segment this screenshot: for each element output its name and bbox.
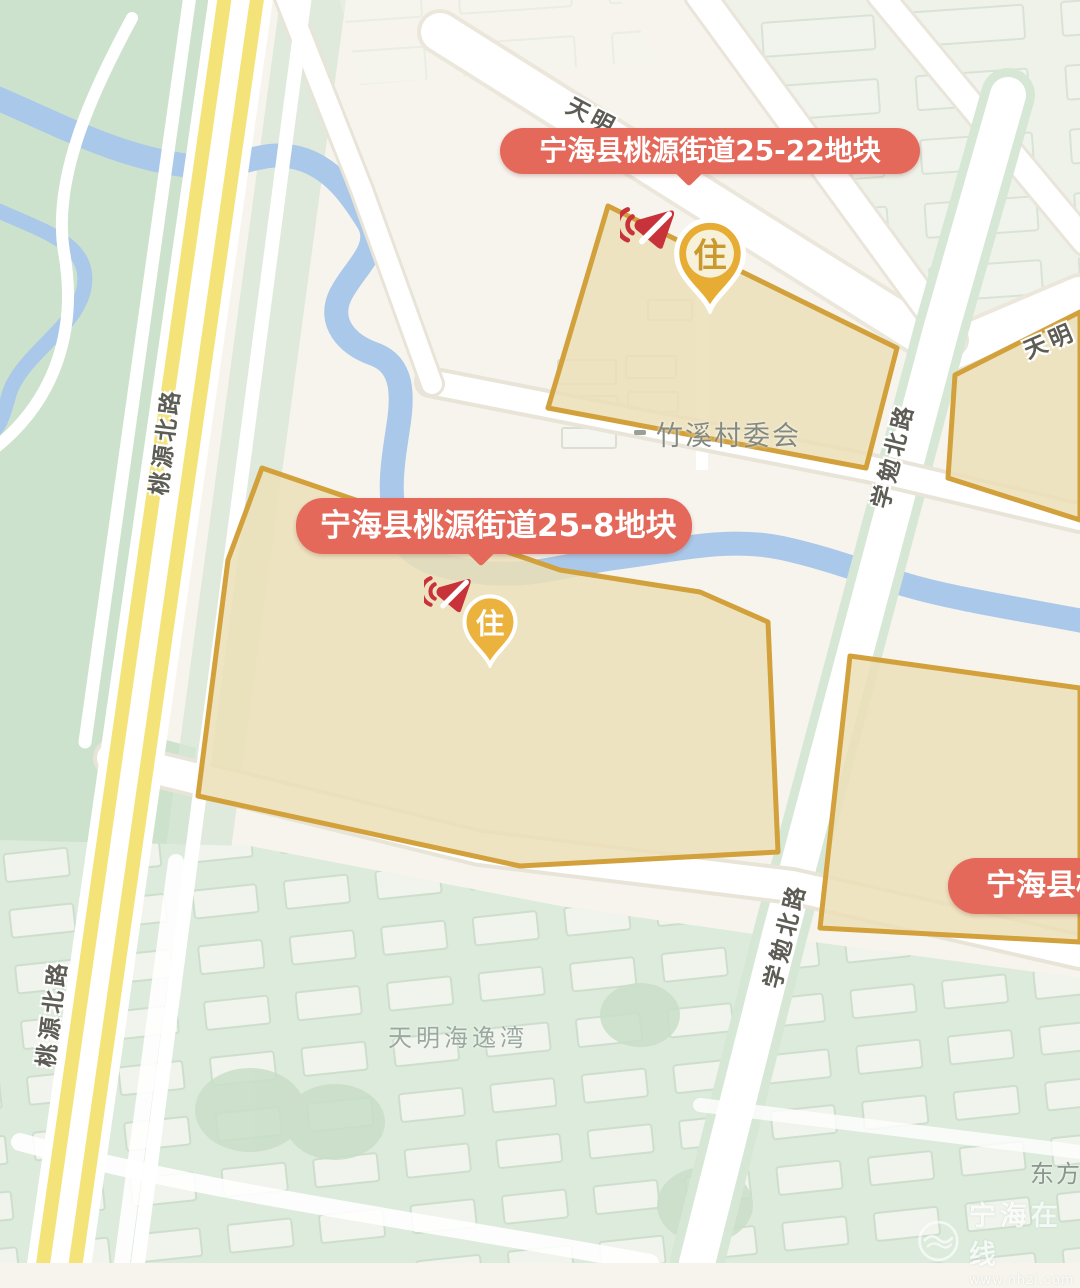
watermark-title: 宁海在线: [969, 1194, 1080, 1272]
map-screenshot: { "map": { "bubbles": [ { "label": "宁海县桃…: [0, 0, 1080, 1263]
parcel-bubble-25-8[interactable]: 宁海县桃源街道25-8地块: [296, 498, 692, 554]
map-canvas[interactable]: [0, 0, 1080, 1263]
watermark-url: www.nhzj.com: [969, 1273, 1080, 1288]
watermark: 宁海在线 www.nhzj.com: [916, 1194, 1080, 1288]
parcel-bubble-25-8-label: 宁海县桃源街道25-8地块: [320, 508, 677, 544]
place-label-tianming-haiyiwan: 天明海逸湾: [388, 1018, 528, 1053]
village-marker-dot: [634, 430, 646, 435]
place-label-dongfang: 东方: [1030, 1154, 1080, 1189]
pin-glyph: 住: [476, 606, 505, 640]
pin-glyph: 住: [693, 236, 726, 275]
watermark-logo-icon: [916, 1216, 961, 1266]
place-label-zhuxi-village: 竹溪村委会: [656, 414, 801, 453]
residential-pin-icon[interactable]: 住: [458, 590, 522, 672]
parcel-bubble-truncated-label: 宁海县桃: [986, 868, 1080, 903]
parcel-bubble-25-22-label: 宁海县桃源街道25-22地块: [539, 134, 881, 167]
parcel-bubble-truncated[interactable]: 宁海县桃: [948, 858, 1080, 914]
residential-pin-icon[interactable]: 住: [668, 212, 752, 318]
parcel-bubble-25-22[interactable]: 宁海县桃源街道25-22地块: [500, 128, 920, 174]
